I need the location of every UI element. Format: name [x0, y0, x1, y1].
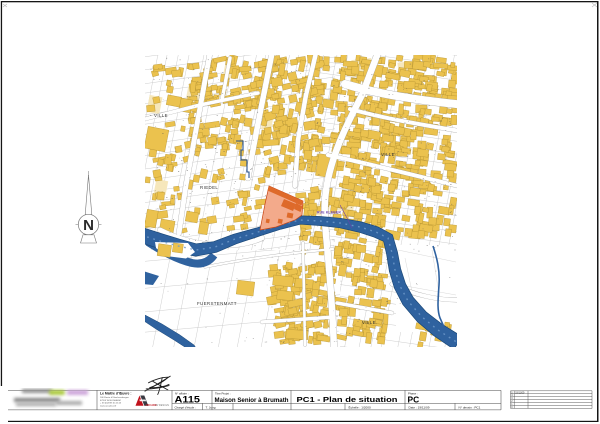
- svg-text:166 Route d’Oberhausbergen: 166 Route d’Oberhausbergen: [100, 396, 130, 399]
- svg-text:VILLE: VILLE: [381, 152, 395, 157]
- svg-text:N: N: [83, 217, 94, 234]
- svg-text:PC: PC: [408, 395, 420, 405]
- svg-text:IN’DESIGN: IN’DESIGN: [156, 404, 170, 407]
- svg-text:A115: A115: [175, 394, 201, 404]
- svg-text:VILLE: VILLE: [362, 320, 376, 325]
- svg-text:PC1 - Plan de situation: PC1 - Plan de situation: [297, 395, 399, 404]
- svg-text:+ 33 (0)3 88 10 42 44: + 33 (0)3 88 10 42 44: [100, 403, 122, 405]
- svg-text:Le Maître d’Œuvre :: Le Maître d’Œuvre :: [100, 392, 131, 396]
- svg-text:19/11/09: 19/11/09: [515, 391, 525, 394]
- svg-text:RUE KLEBER: RUE KLEBER: [317, 211, 341, 215]
- svg-text:VILLE: VILLE: [154, 113, 168, 118]
- svg-text:Échelle : 1/2000: Échelle : 1/2000: [349, 404, 371, 409]
- svg-text:FUERSTENMATT: FUERSTENMATT: [197, 301, 237, 306]
- svg-text:Date : 19/11/09: Date : 19/11/09: [409, 405, 430, 409]
- svg-text:RIEDEL: RIEDEL: [200, 185, 218, 190]
- svg-text:Maison Senior à Brumath: Maison Senior à Brumath: [215, 397, 289, 404]
- svg-text:67205 WOLFISHEIM: 67205 WOLFISHEIM: [100, 400, 121, 402]
- svg-text:N° dessin : PC1: N° dessin : PC1: [459, 405, 481, 409]
- svg-text:Titre Projet :: Titre Projet :: [215, 391, 231, 395]
- svg-text:T. Jung: T. Jung: [206, 405, 216, 409]
- svg-text:www.arcade-id.fr: www.arcade-id.fr: [100, 404, 117, 407]
- svg-text:Chargé d’étude :: Chargé d’étude :: [175, 405, 197, 409]
